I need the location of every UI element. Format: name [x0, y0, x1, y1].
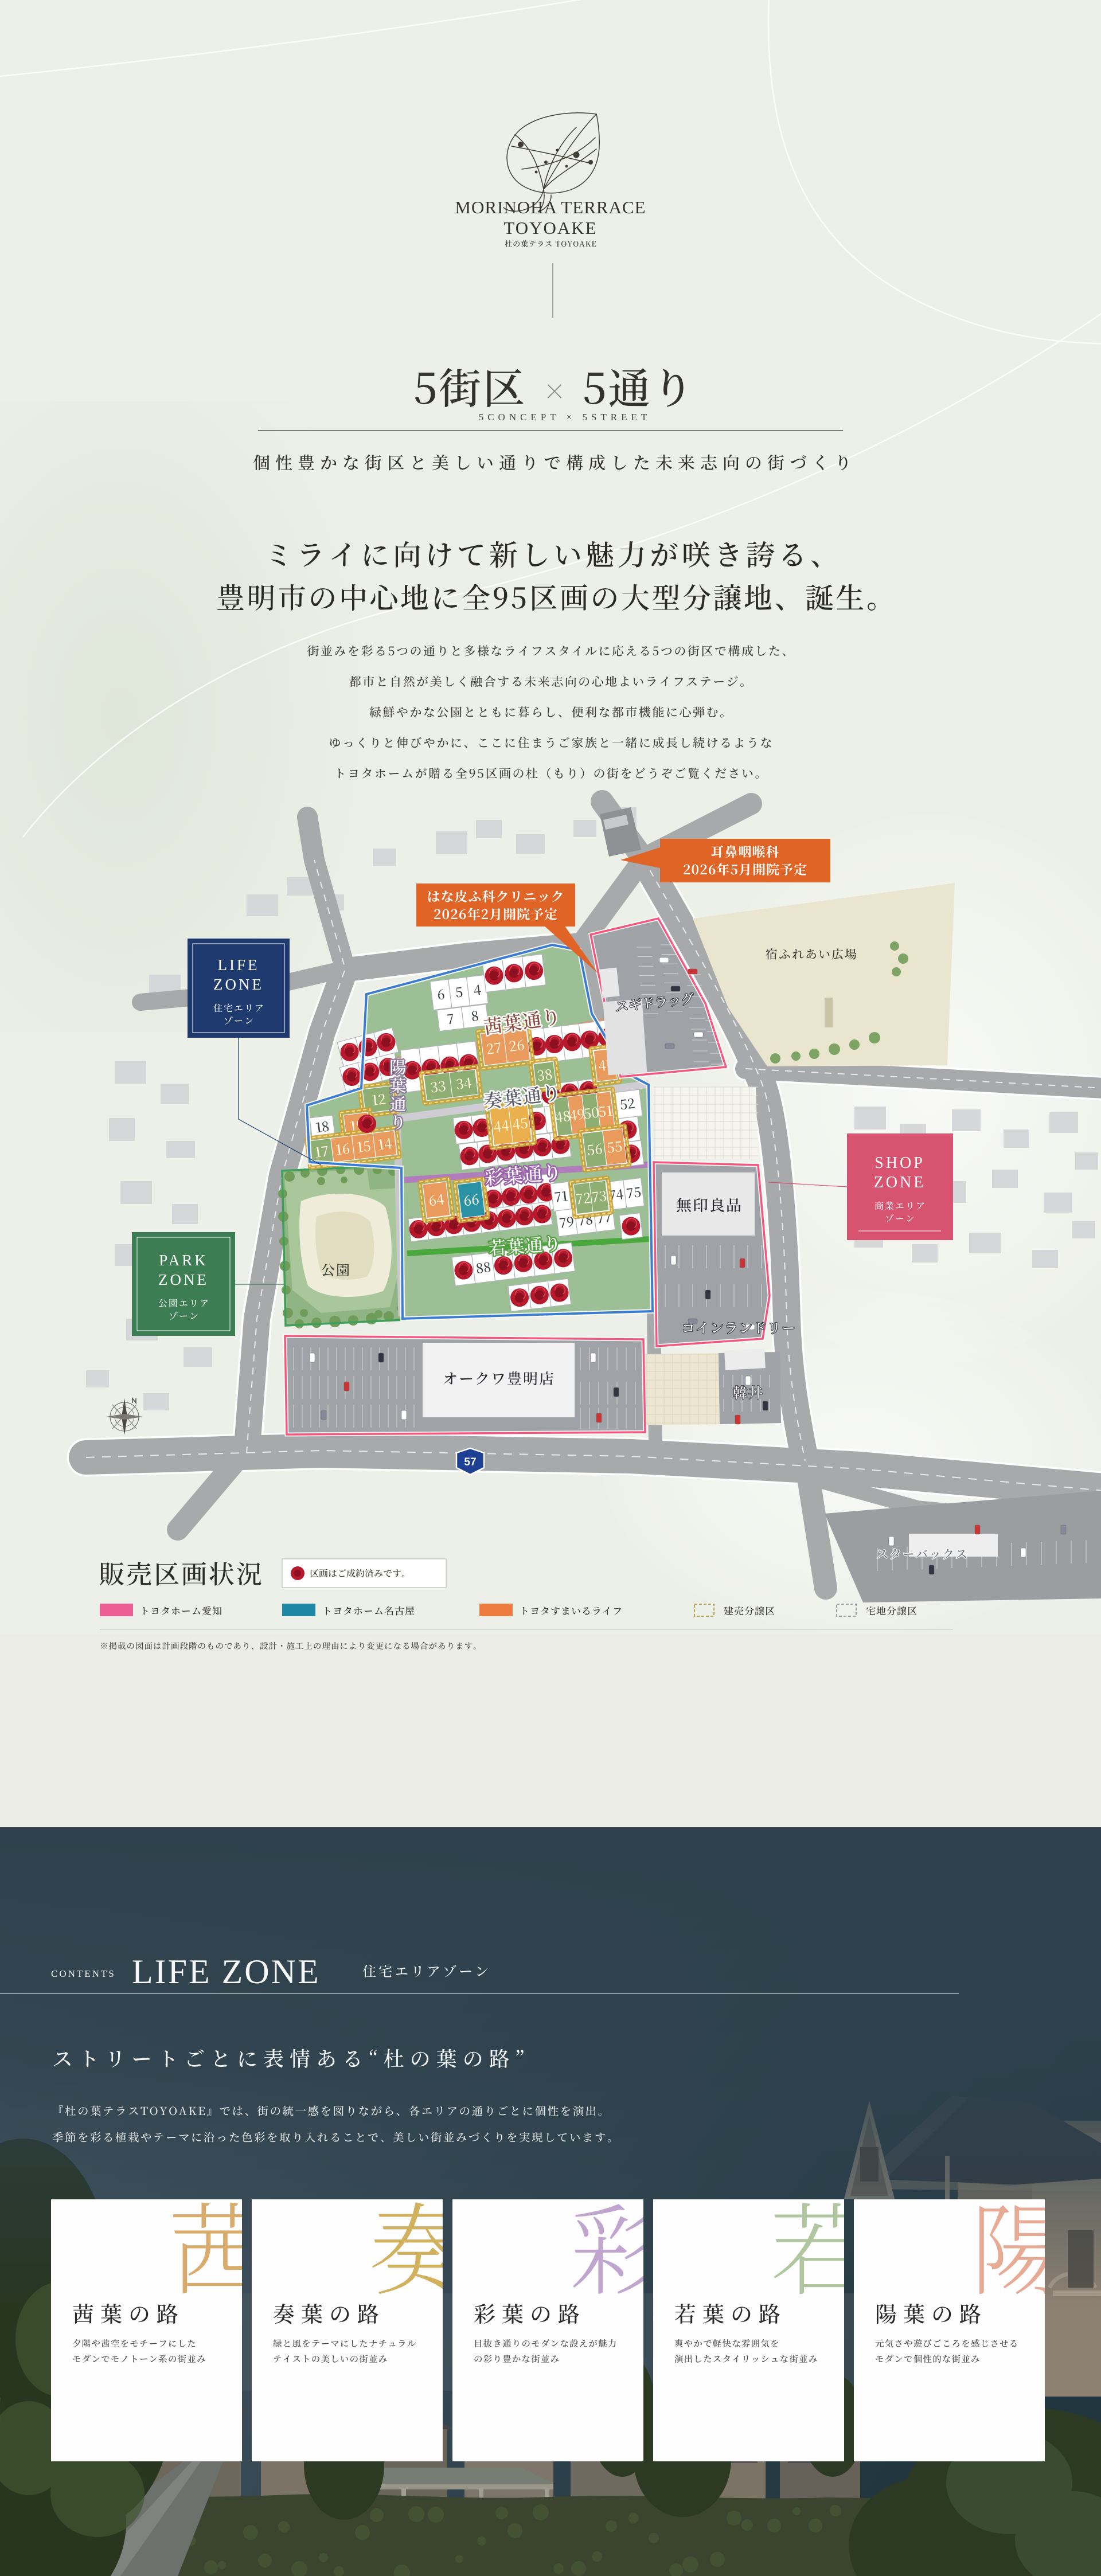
- svg-text:ZONE: ZONE: [158, 1271, 209, 1288]
- svg-text:LIFE ZONE: LIFE ZONE: [132, 1953, 321, 1991]
- svg-text:ZONE: ZONE: [213, 976, 264, 993]
- svg-text:MORINOHA TERRACE: MORINOHA TERRACE: [455, 197, 646, 217]
- svg-text:5CONCEPT × 5STREET: 5CONCEPT × 5STREET: [479, 412, 651, 423]
- svg-text:TOYOAKE: TOYOAKE: [503, 218, 597, 238]
- svg-text:57: 57: [464, 1456, 476, 1468]
- svg-text:ZONE: ZONE: [874, 1174, 926, 1191]
- svg-text:CONTENTS: CONTENTS: [51, 1968, 116, 1979]
- svg-text:SHOP: SHOP: [874, 1154, 925, 1172]
- svg-text:LIFE: LIFE: [218, 956, 260, 974]
- svg-text:PARK: PARK: [159, 1252, 208, 1269]
